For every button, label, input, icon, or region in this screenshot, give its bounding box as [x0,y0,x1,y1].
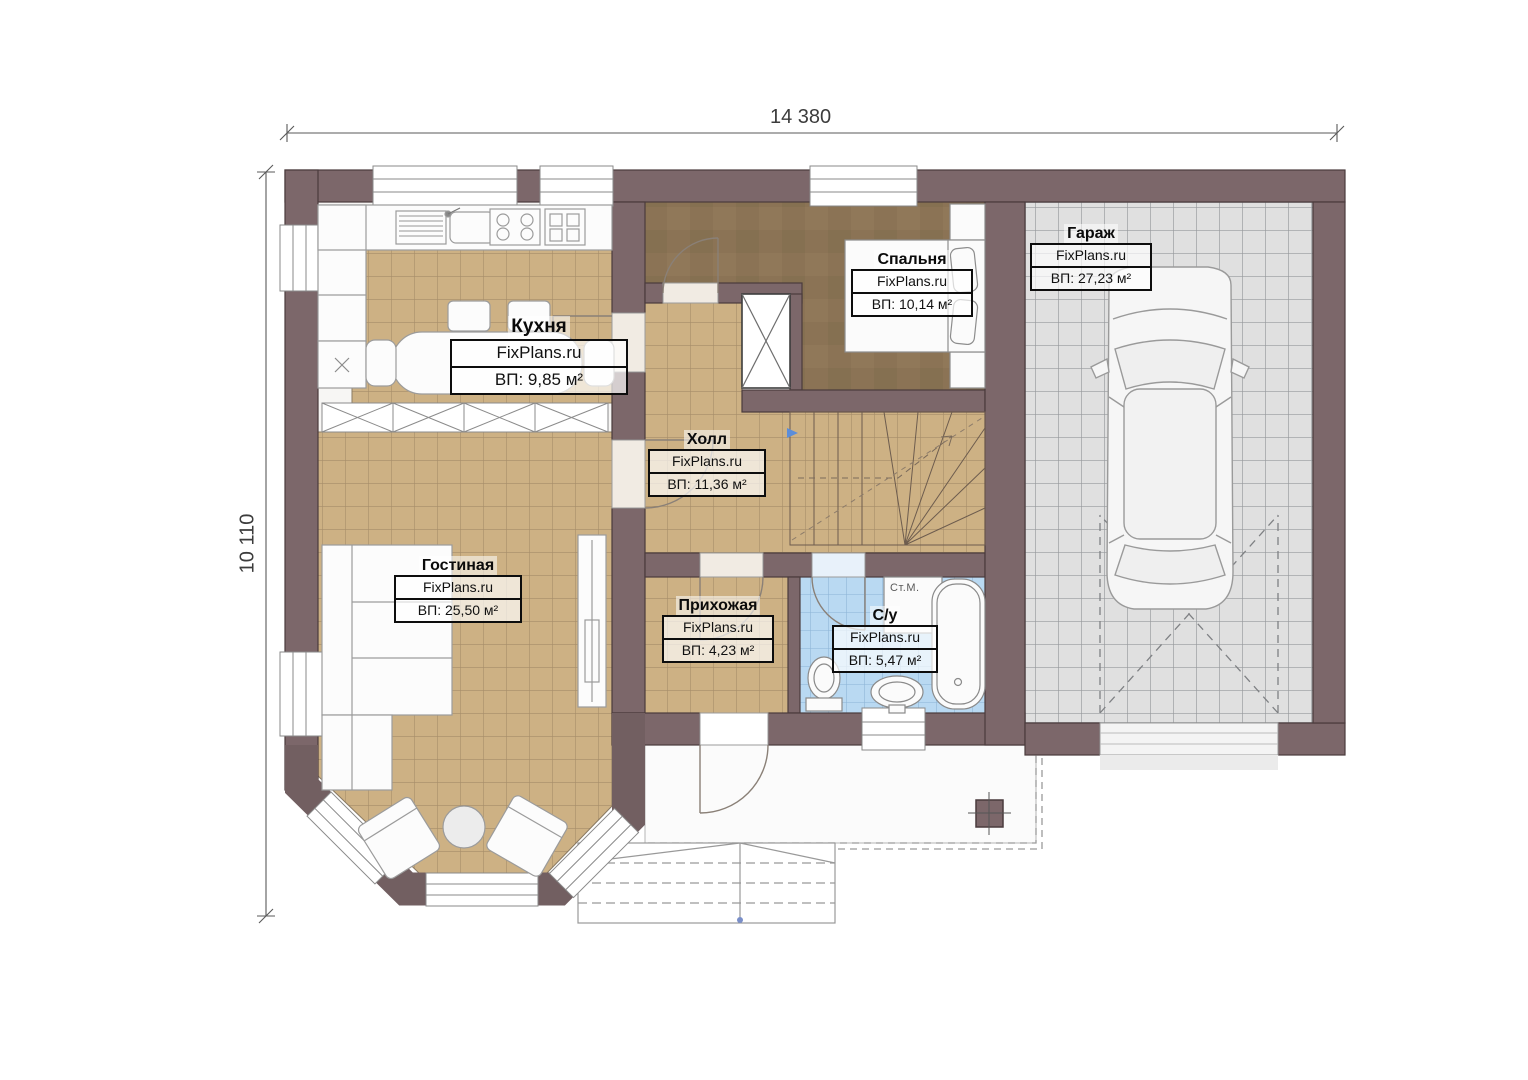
room-name: Гостиная [419,556,497,575]
car-roof [1124,389,1216,539]
dimension-left-text: 10 110 [236,514,259,574]
nightstand [950,352,985,388]
car [1091,267,1249,609]
coffee-table [443,806,485,848]
room-brand: FixPlans.ru [648,449,766,474]
room-area: ВП: 5,47 м² [832,648,938,673]
room-name: Холл [684,430,730,449]
wall-entry-bath-divider [788,577,800,713]
nightstand [950,204,985,240]
wall-house-bottom-2 [768,713,862,745]
bay-window-center [426,873,538,906]
room-brand: FixPlans.ru [851,269,973,294]
bathtub [932,579,985,709]
door-gap-living [612,440,645,508]
room-name: С/у [870,606,901,625]
room-area: ВП: 11,36 м² [648,472,766,497]
room-label-entry: Прихожая FixPlans.ru ВП: 4,23 м² [662,596,774,663]
wall-hall-bottom-1 [645,553,700,577]
kitchen-window-1 [373,166,517,206]
porch-floor [645,745,1036,843]
floor-plan: 14 380 10 110 Кухня FixPlans.ru ВП: 9,85… [0,0,1528,1080]
kitchen-counter-left [318,205,366,341]
kitchen-window-2 [540,166,613,206]
dimension-top-text: 14 380 [770,106,831,129]
room-name: Гараж [1064,224,1118,243]
kitchen-sink [396,208,494,244]
room-label-kitchen: Кухня FixPlans.ru ВП: 9,85 м² [450,316,628,395]
room-label-living: Гостиная FixPlans.ru ВП: 25,50 м² [394,556,522,623]
door-gap-entry [700,553,763,577]
wall-corridor-1 [645,283,663,303]
door-gap-bedroom [663,283,718,303]
room-brand: FixPlans.ru [662,615,774,640]
bedroom-window [810,166,917,206]
kitchen-living-divider [322,403,608,432]
room-brand: FixPlans.ru [832,625,938,650]
room-label-bedroom: Спальня FixPlans.ru ВП: 10,14 м² [851,250,973,317]
door-gap-bathroom [812,553,865,577]
wall-under-bedroom [742,390,985,412]
wall-hall-bottom-3 [865,553,985,577]
kitchen-chair [366,340,396,386]
car-rear-window [1115,545,1225,584]
car-windshield [1115,340,1225,389]
room-area: ВП: 4,23 м² [662,638,774,663]
left-window-2 [280,652,322,736]
room-area: ВП: 9,85 м² [450,366,628,395]
room-area: ВП: 27,23 м² [1030,266,1152,291]
room-name: Спальня [874,250,949,269]
door-gap-front [700,713,768,745]
room-brand: FixPlans.ru [1030,243,1152,268]
room-label-hall: Холл FixPlans.ru ВП: 11,36 м² [648,430,766,497]
kitchen-stove [490,209,540,245]
floor-plan-drawing [0,0,1528,1080]
room-label-bathroom: С/у FixPlans.ru ВП: 5,47 м² [832,606,938,673]
room-name: Кухня [508,316,570,339]
tv-stand [578,535,606,707]
room-area: ВП: 25,50 м² [394,598,522,623]
bathroom-window [862,708,925,750]
kitchen-oven [545,209,585,245]
room-brand: FixPlans.ru [394,575,522,600]
garage-door [1100,723,1278,770]
wall-kitchen-3 [612,508,645,713]
room-brand: FixPlans.ru [450,339,628,368]
wall-garage-separator [985,202,1025,745]
washing-machine-label: Ст.М. [890,582,920,594]
wall-hall-bottom-2 [763,553,812,577]
wall-garage-bottom-1 [1025,723,1100,755]
wall-right [1313,202,1345,723]
wall-closet-side [790,294,802,390]
wall-kitchen-1 [612,202,645,313]
room-area: ВП: 10,14 м² [851,292,973,317]
wardrobe-closet [742,294,790,388]
wall-garage-bottom-2 [1278,723,1345,755]
room-label-garage: Гараж FixPlans.ru ВП: 27,23 м² [1030,224,1152,291]
left-window-1 [280,225,322,291]
room-name: Прихожая [676,596,761,615]
